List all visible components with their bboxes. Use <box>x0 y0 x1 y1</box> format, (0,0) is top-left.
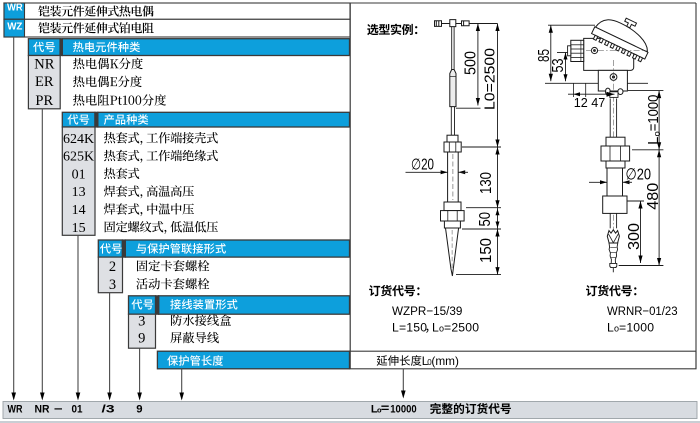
svg-text:L: L <box>646 137 662 145</box>
svg-text:53: 53 <box>550 58 567 72</box>
svg-text:PR: PR <box>35 93 53 109</box>
svg-text:12: 12 <box>574 96 588 110</box>
svg-text:=2500: =2500 <box>444 321 479 335</box>
svg-text:ER: ER <box>35 74 54 90</box>
svg-text:WR: WR <box>7 3 23 14</box>
svg-text:–: – <box>54 403 63 415</box>
svg-text:3: 3 <box>109 277 116 293</box>
svg-text:WRNR−01/23: WRNR−01/23 <box>607 304 678 318</box>
svg-text:/3: /3 <box>102 403 115 415</box>
svg-text:NR: NR <box>35 403 50 415</box>
svg-text:WZ: WZ <box>7 21 22 32</box>
svg-text:L: L <box>432 321 439 335</box>
svg-text:01: 01 <box>72 403 83 415</box>
svg-text:15: 15 <box>72 221 86 236</box>
svg-text:9: 9 <box>138 331 145 347</box>
svg-text:150: 150 <box>478 238 495 263</box>
svg-text:480: 480 <box>645 183 662 210</box>
svg-text:9: 9 <box>136 403 142 415</box>
svg-text:01: 01 <box>72 167 86 182</box>
svg-text:L: L <box>607 321 614 335</box>
svg-text:3: 3 <box>138 313 145 329</box>
svg-text:300: 300 <box>626 223 643 250</box>
svg-text:47: 47 <box>591 96 605 110</box>
svg-text:L0=2500: L0=2500 <box>482 48 499 110</box>
svg-text:10000: 10000 <box>390 403 416 415</box>
svg-text:625K: 625K <box>63 150 94 165</box>
svg-text:L=150: L=150 <box>392 321 427 335</box>
svg-text:500: 500 <box>463 51 480 75</box>
svg-text:∅20: ∅20 <box>411 157 434 174</box>
svg-text:624K: 624K <box>63 132 94 147</box>
svg-text:50: 50 <box>477 212 494 227</box>
svg-text:14: 14 <box>72 203 86 218</box>
svg-text:13: 13 <box>72 185 86 200</box>
svg-text:WZPR−15/39: WZPR−15/39 <box>392 304 463 318</box>
svg-text:2: 2 <box>109 259 116 275</box>
svg-text:=1000: =1000 <box>646 95 662 132</box>
svg-text:WR: WR <box>8 403 23 415</box>
svg-text:(mm): (mm) <box>431 354 459 368</box>
svg-text:=: = <box>381 403 390 415</box>
svg-text:130: 130 <box>478 172 495 194</box>
svg-text:NR: NR <box>34 56 54 72</box>
svg-text:=1000: =1000 <box>619 321 654 335</box>
